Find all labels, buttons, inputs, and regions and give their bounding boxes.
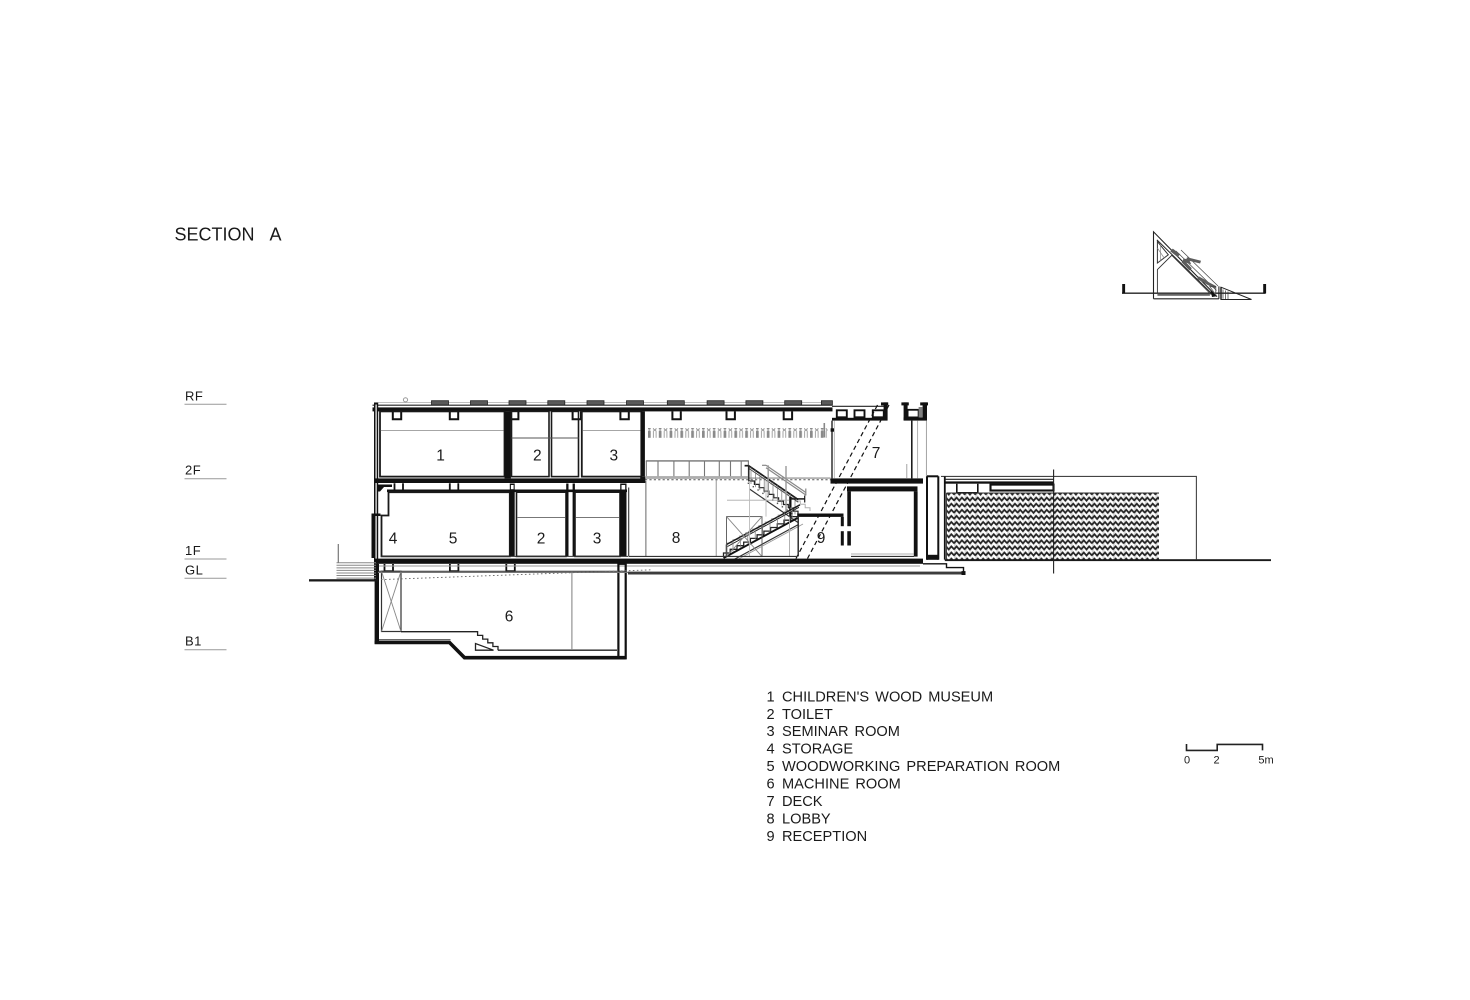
svg-text:5: 5 xyxy=(767,759,775,775)
svg-text:1: 1 xyxy=(767,689,775,705)
svg-text:3: 3 xyxy=(609,447,618,464)
svg-text:2: 2 xyxy=(533,447,542,464)
svg-text:6: 6 xyxy=(505,609,514,626)
svg-text:2: 2 xyxy=(1213,755,1219,767)
svg-text:SEMINAR ROOM: SEMINAR ROOM xyxy=(782,724,900,740)
svg-text:8: 8 xyxy=(767,811,775,827)
svg-text:0: 0 xyxy=(1184,755,1190,767)
svg-text:2: 2 xyxy=(767,707,775,723)
svg-text:7: 7 xyxy=(872,445,881,462)
svg-text:B1: B1 xyxy=(185,633,202,648)
svg-text:4: 4 xyxy=(389,531,398,548)
svg-text:3: 3 xyxy=(767,724,775,740)
svg-text:RECEPTION: RECEPTION xyxy=(782,829,867,845)
svg-text:MACHINE ROOM: MACHINE ROOM xyxy=(782,777,901,793)
svg-text:2F: 2F xyxy=(185,462,201,477)
svg-text:LOBBY: LOBBY xyxy=(782,811,831,827)
svg-text:SECTION A: SECTION A xyxy=(175,225,282,245)
svg-text:5: 5 xyxy=(449,531,458,548)
svg-text:2: 2 xyxy=(537,531,546,548)
svg-text:9: 9 xyxy=(767,829,775,845)
svg-text:WOODWORKING PREPARATION ROOM: WOODWORKING PREPARATION ROOM xyxy=(782,759,1060,775)
svg-text:9: 9 xyxy=(817,530,826,547)
svg-text:RF: RF xyxy=(185,388,203,403)
svg-text:4: 4 xyxy=(767,742,775,758)
svg-text:5m: 5m xyxy=(1258,755,1273,767)
svg-text:CHILDREN'S WOOD MUSEUM: CHILDREN'S WOOD MUSEUM xyxy=(782,689,993,705)
svg-text:GL: GL xyxy=(185,562,203,577)
svg-text:6: 6 xyxy=(767,777,775,793)
svg-text:DECK: DECK xyxy=(782,794,823,810)
svg-text:7: 7 xyxy=(767,794,775,810)
svg-text:3: 3 xyxy=(593,531,602,548)
svg-text:1: 1 xyxy=(436,447,445,464)
svg-text:STORAGE: STORAGE xyxy=(782,742,853,758)
svg-text:TOILET: TOILET xyxy=(782,707,833,723)
svg-text:8: 8 xyxy=(672,530,681,547)
svg-text:1F: 1F xyxy=(185,543,201,558)
